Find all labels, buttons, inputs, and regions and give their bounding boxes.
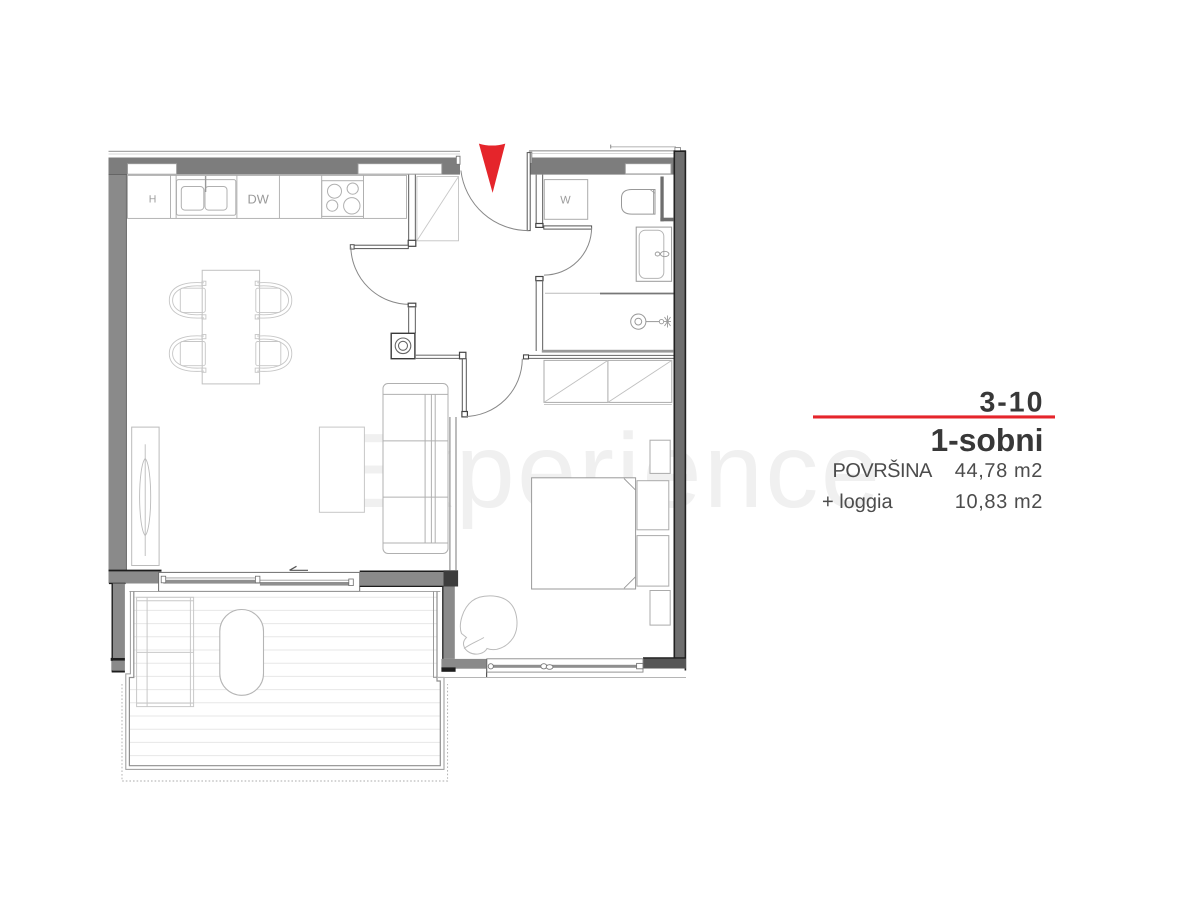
- svg-text:POVRŠINA: POVRŠINA: [833, 459, 934, 482]
- svg-text:W: W: [560, 195, 571, 207]
- svg-text:3-10: 3-10: [979, 386, 1044, 418]
- svg-text:1-sobni: 1-sobni: [930, 422, 1043, 458]
- svg-text:10,83 m2: 10,83 m2: [955, 491, 1043, 513]
- svg-text:+ loggia: + loggia: [822, 491, 893, 513]
- svg-text:DW: DW: [248, 191, 270, 206]
- svg-text:H: H: [149, 194, 157, 206]
- svg-text:44,78 m2: 44,78 m2: [955, 460, 1043, 482]
